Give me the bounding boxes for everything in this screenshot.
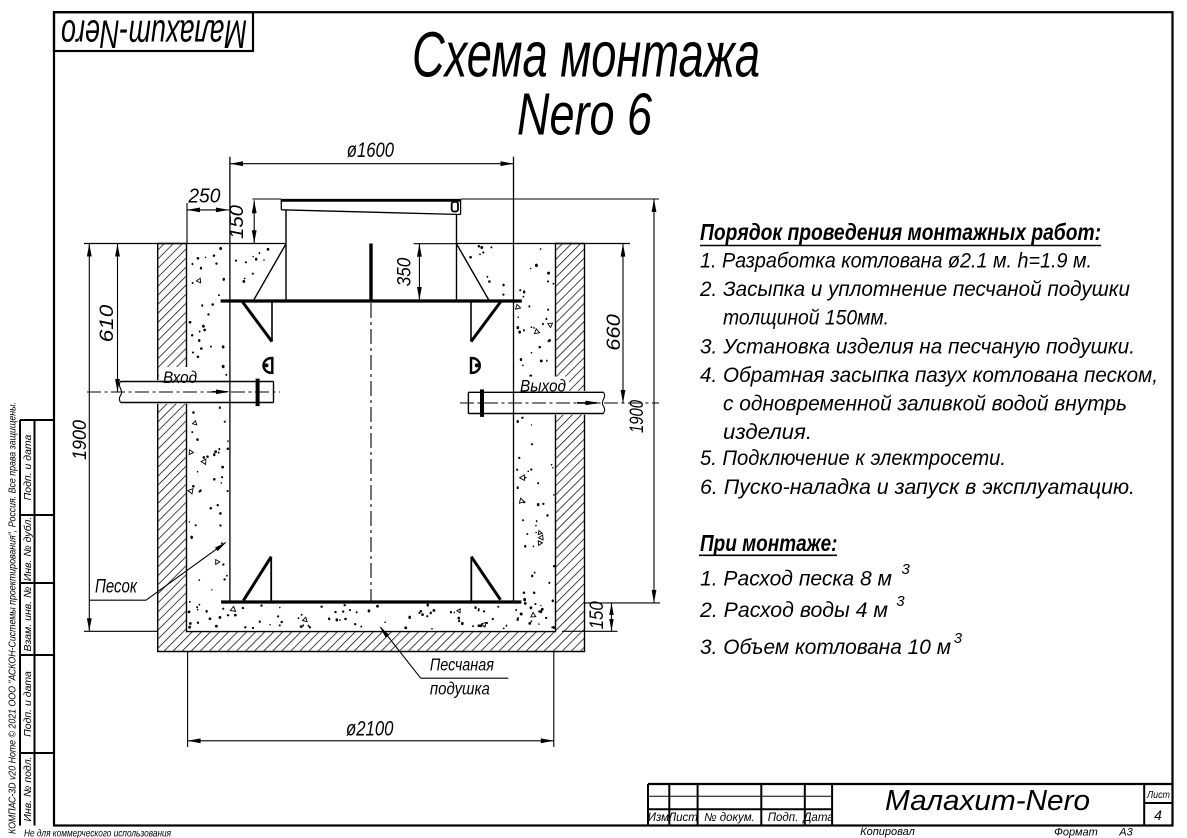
svg-text:Взам. инв. №: Взам. инв. № [22,587,34,652]
svg-text:3. Объем котлована 10 м: 3. Объем котлована 10 м [700,635,951,659]
svg-text:толщиной 150мм.: толщиной 150мм. [723,306,889,330]
svg-text:При монтаже:: При монтаже: [700,530,838,556]
svg-text:Nero 6: Nero 6 [517,82,652,148]
svg-text:А3: А3 [1118,827,1133,838]
svg-text:Подп.: Подп. [768,812,799,824]
svg-text:610: 610 [96,305,118,343]
svg-text:660: 660 [603,314,625,351]
svg-text:Не для коммерческого использов: Не для коммерческого использования [24,827,171,838]
svg-text:Малахит-Nero: Малахит-Nero [885,785,1090,817]
svg-text:изделия.: изделия. [723,420,812,444]
svg-text:Подп. и дата: Подп. и дата [22,434,34,500]
svg-text:Песок: Песок [95,577,138,598]
svg-text:Дата: Дата [801,812,833,824]
svg-text:2. Расход воды 4 м: 2. Расход воды 4 м [699,598,888,622]
svg-text:ø1600: ø1600 [347,139,394,162]
svg-text:Песчаная: Песчаная [430,655,494,675]
svg-text:1. Разработка котлована ø2.1 м: 1. Разработка котлована ø2.1 м. h=1.9 м. [700,248,1092,272]
svg-text:Лист: Лист [1146,790,1170,801]
svg-text:350: 350 [394,258,416,287]
svg-text:Подп. и дата: Подп. и дата [22,671,34,737]
svg-text:Схема монтажа: Схема монтажа [412,18,760,90]
svg-text:150: 150 [586,601,608,629]
svg-text:Выход: Выход [520,377,566,395]
svg-text:Малахит-Nero: Малахит-Nero [61,12,247,56]
svg-text:Инв. № дубл.: Инв. № дубл. [22,517,34,582]
svg-text:2. Засыпка и уплотнение песчан: 2. Засыпка и уплотнение песчаной подушки [699,277,1130,301]
svg-text:3: 3 [954,630,963,647]
svg-text:3: 3 [902,561,911,578]
svg-text:Формат: Формат [1054,827,1098,838]
svg-text:Лист: Лист [667,812,698,824]
svg-text:Инв. № подл.: Инв. № подл. [22,756,34,821]
svg-text:№ докум.: № докум. [704,812,755,824]
svg-text:4: 4 [1154,807,1162,823]
svg-text:ø2100: ø2100 [346,718,394,741]
svg-text:КОМПАС-3D v20 Home © 2021 ООО: КОМПАС-3D v20 Home © 2021 ООО "АСКОН-Сис… [7,402,19,834]
svg-text:1. Расход песка 8 м: 1. Расход песка 8 м [700,567,892,591]
svg-text:5. Подключение к электросети.: 5. Подключение к электросети. [700,446,1006,470]
svg-text:250: 250 [187,185,220,207]
svg-text:3. Установка изделия на песчан: 3. Установка изделия на песчаную подушки… [700,334,1135,358]
svg-text:подушка: подушка [430,679,490,699]
svg-text:4. Обратная засыпка пазух котл: 4. Обратная засыпка пазух котлована песк… [700,363,1158,387]
svg-text:150: 150 [226,205,248,239]
svg-text:1900: 1900 [69,420,91,460]
svg-text:с одновременной заливкой водой: с одновременной заливкой водой внутрь [723,392,1127,416]
svg-text:3: 3 [896,593,905,610]
svg-text:Порядок проведения монтажных р: Порядок проведения монтажных работ: [700,219,1101,245]
svg-text:Вход: Вход [163,369,197,387]
svg-text:1900: 1900 [626,400,648,433]
svg-text:6. Пуско-наладка и запуск в эк: 6. Пуско-наладка и запуск в эксплуатацию… [700,475,1135,499]
svg-text:Копировал: Копировал [860,826,915,838]
